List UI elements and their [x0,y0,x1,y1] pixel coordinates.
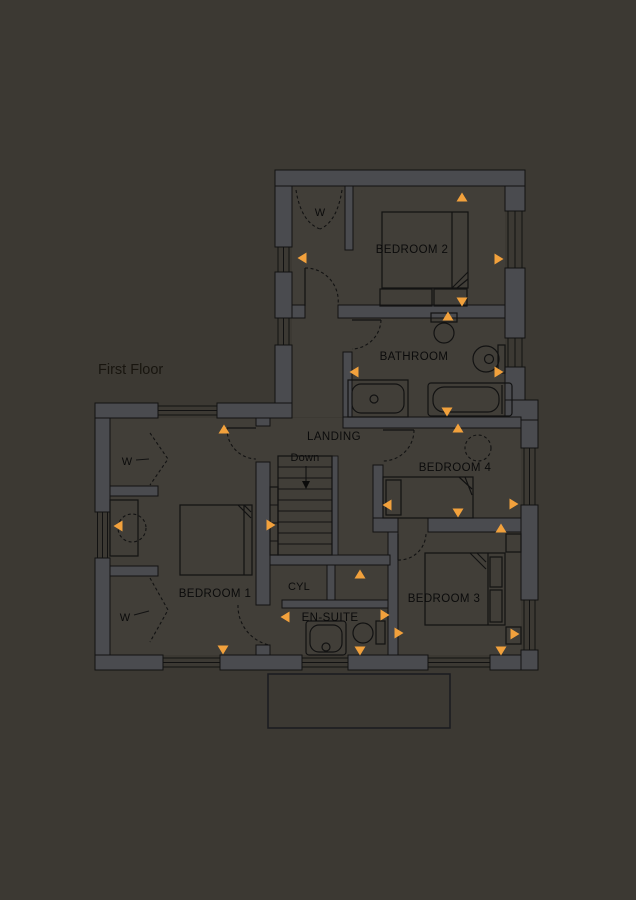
upper-floor-area [292,186,505,417]
wall-bed2-bottom-stub [292,305,305,318]
wall-bed4-bottom-2 [428,518,521,532]
wall-left-lower-1 [95,418,110,512]
wall-bed2-bathroom [338,305,505,318]
window [302,655,348,670]
room-label-bedroom-2: BEDROOM 2 [376,244,449,256]
wall-wardrobe-finger-bottom [110,566,158,576]
wall-cyl-divider [327,565,335,600]
wardrobe-label-bedroom2: W [315,207,326,219]
wall-top-lower-1 [95,403,158,418]
wall-top-lower-2 [217,403,292,418]
stairs-down-label: Down [291,452,320,464]
wall-left-upper-3 [275,345,292,403]
room-label-cyl: CYL [288,581,310,593]
floor-title: First Floor [98,362,163,378]
floorplan-page: First Floor BEDROOM 2 BATHROOM LANDING D… [0,0,636,900]
wall-bathroom-bottom [343,417,521,428]
wardrobe-label-bedroom1-bottom: W [120,612,131,624]
window [505,338,525,367]
wall-right-lower-2 [521,505,538,600]
wall-bed1-right [256,462,270,605]
wall-right-upper-1 [505,186,525,211]
window [275,318,292,345]
window [505,211,525,268]
window [158,403,217,418]
wall-wardrobe-finger-top [110,486,158,496]
wall-bed1-right-stub-bottom [256,645,270,655]
wall-right-lower-3 [521,650,538,670]
wall-bottom-2 [220,655,302,670]
window [95,512,110,558]
wall-left-upper-2 [275,272,292,318]
wall-left-upper-1 [275,186,292,247]
window [163,655,220,670]
wall-bottom-1 [95,655,163,670]
window [521,600,538,650]
window [521,448,538,505]
wall-wardrobe-bed2 [345,186,353,250]
wall-bottom-3 [348,655,428,670]
ground-floor-outline [268,674,450,728]
room-label-bedroom-1: BEDROOM 1 [179,588,252,600]
window [428,655,490,670]
stairs-balustrade [332,456,338,555]
wall-left-lower-2 [95,558,110,655]
wall-bed4-bottom-1 [373,518,398,532]
wall-right-upper-2 [505,268,525,338]
wardrobe-label-bedroom1-top: W [122,456,133,468]
room-label-bedroom-3: BEDROOM 3 [408,593,481,605]
wall-stairs-bottom [270,555,390,565]
room-label-ensuite: EN-SUITE [302,612,359,624]
room-label-bathroom: BATHROOM [380,351,449,363]
wall-right-lower-1 [521,420,538,448]
room-label-landing: LANDING [307,431,361,443]
room-label-bedroom-4: BEDROOM 4 [419,462,492,474]
wall-bed1-right-stub-top [256,418,270,426]
floor-plan-svg: First Floor BEDROOM 2 BATHROOM LANDING D… [0,0,636,900]
wall-top-upper [275,170,525,186]
wall-bed4-left [373,465,383,518]
wall-ensuite-top [282,600,388,608]
window [275,247,292,272]
